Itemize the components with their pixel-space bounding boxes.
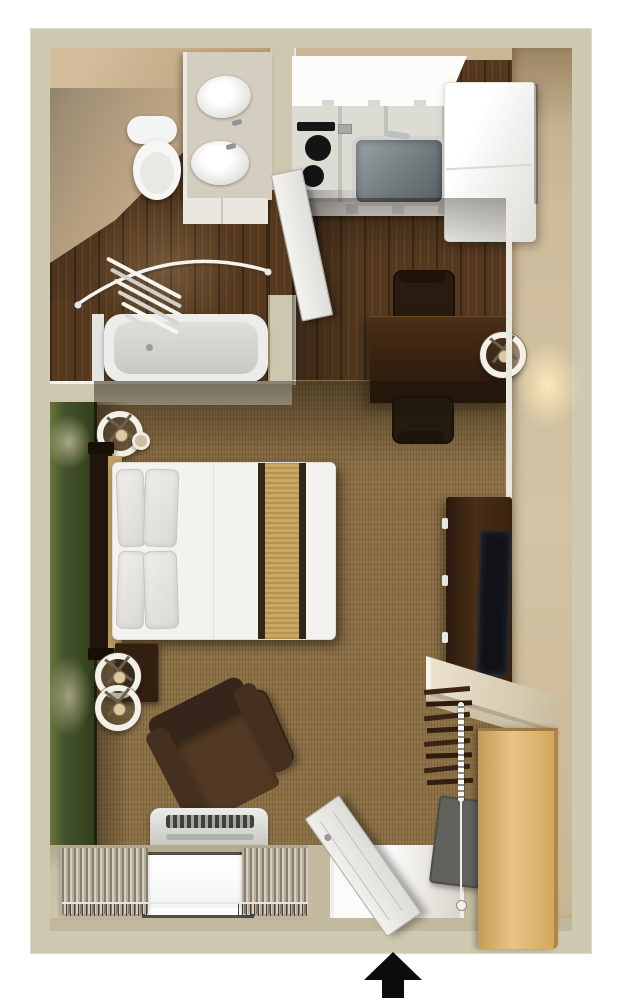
- clothes-hangers: [424, 688, 474, 808]
- door-knob-icon: [323, 833, 333, 843]
- bed-mattress: [112, 462, 336, 640]
- arrow-stem: [382, 980, 404, 998]
- cooktop-knob-panel: [338, 124, 352, 134]
- arrow-head: [364, 952, 422, 980]
- pillow: [116, 551, 147, 630]
- television: [476, 530, 512, 677]
- curtain-pleats-left: [66, 904, 150, 916]
- table-lamp: [480, 332, 526, 378]
- window-glass: [148, 860, 242, 908]
- toilet-seat: [140, 152, 174, 194]
- shower-curtain-folds: [98, 270, 198, 356]
- bed-stripe-left: [258, 463, 265, 639]
- floor-plan-page: [0, 0, 621, 1000]
- ac-lower-slot: [166, 834, 254, 840]
- duvet-seam: [213, 463, 214, 639]
- burner-large-icon: [305, 135, 331, 161]
- bead-chain: [458, 702, 464, 802]
- bed-runner-tan: [265, 463, 299, 639]
- dining-chair-top: [393, 270, 455, 322]
- bead-chain-cord: [460, 802, 462, 902]
- vanity-sink-bottom: [191, 141, 249, 185]
- counter-front-notch-2: [346, 204, 358, 214]
- cooktop-control-bar: [297, 122, 335, 131]
- pillow: [116, 469, 147, 548]
- apartment-interior: [50, 48, 572, 918]
- headboard-post-top: [88, 442, 114, 454]
- dining-chair-bottom: [392, 396, 454, 444]
- chair-backrest: [398, 431, 444, 444]
- bed-stripe-right: [299, 463, 306, 639]
- refrigerator-wall-gap: [534, 84, 538, 204]
- ac-vent-grille: [166, 815, 254, 828]
- upper-cabinets: [292, 56, 467, 106]
- floor-plan: [30, 28, 592, 954]
- bed-lamp-bottom: [95, 685, 141, 731]
- chair-backrest: [399, 270, 445, 283]
- console-handle-3: [442, 632, 448, 643]
- counter-groove-1: [338, 106, 342, 202]
- small-bulb-icon: [132, 432, 150, 450]
- vanity-cabinet-front: [183, 198, 268, 224]
- pillow: [143, 550, 180, 629]
- kitchen-sink: [352, 136, 446, 206]
- console-handle-2: [442, 575, 448, 586]
- refrigerator: [444, 82, 536, 242]
- curtain-pleats-right: [238, 904, 314, 916]
- console-handle-1: [442, 518, 448, 529]
- closet-oak-panel: [478, 728, 558, 949]
- bead-chain-end: [456, 900, 467, 911]
- pillow: [143, 468, 180, 547]
